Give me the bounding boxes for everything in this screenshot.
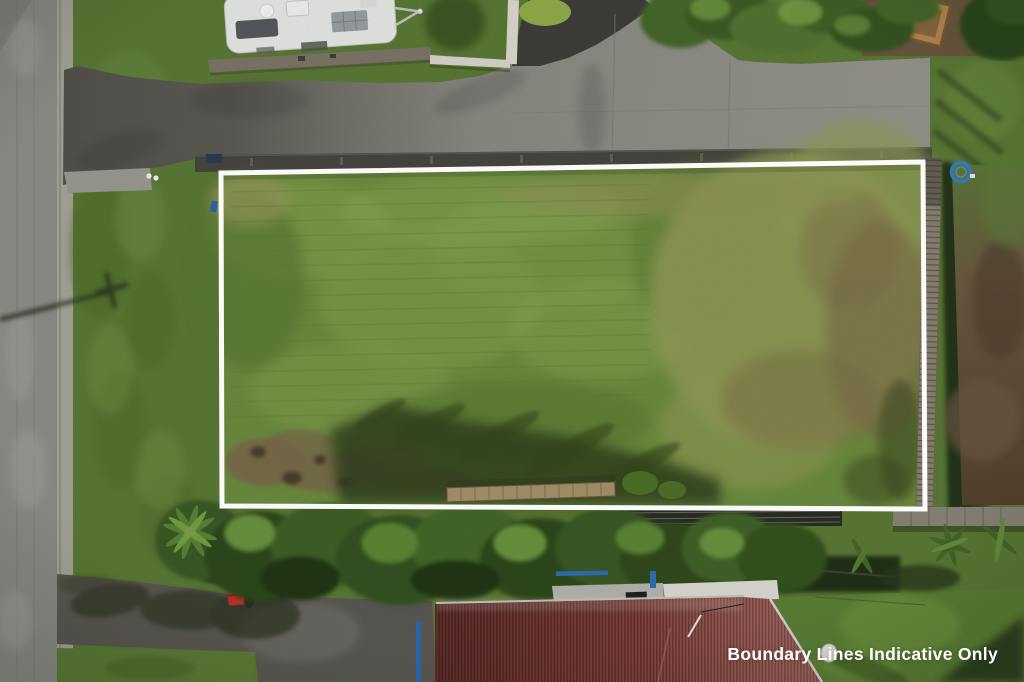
vignette xyxy=(0,0,1024,682)
aerial-photo-scene xyxy=(0,0,1024,682)
aerial-photo: Boundary Lines Indicative Only xyxy=(0,0,1024,682)
caption: Boundary Lines Indicative Only xyxy=(727,644,998,665)
